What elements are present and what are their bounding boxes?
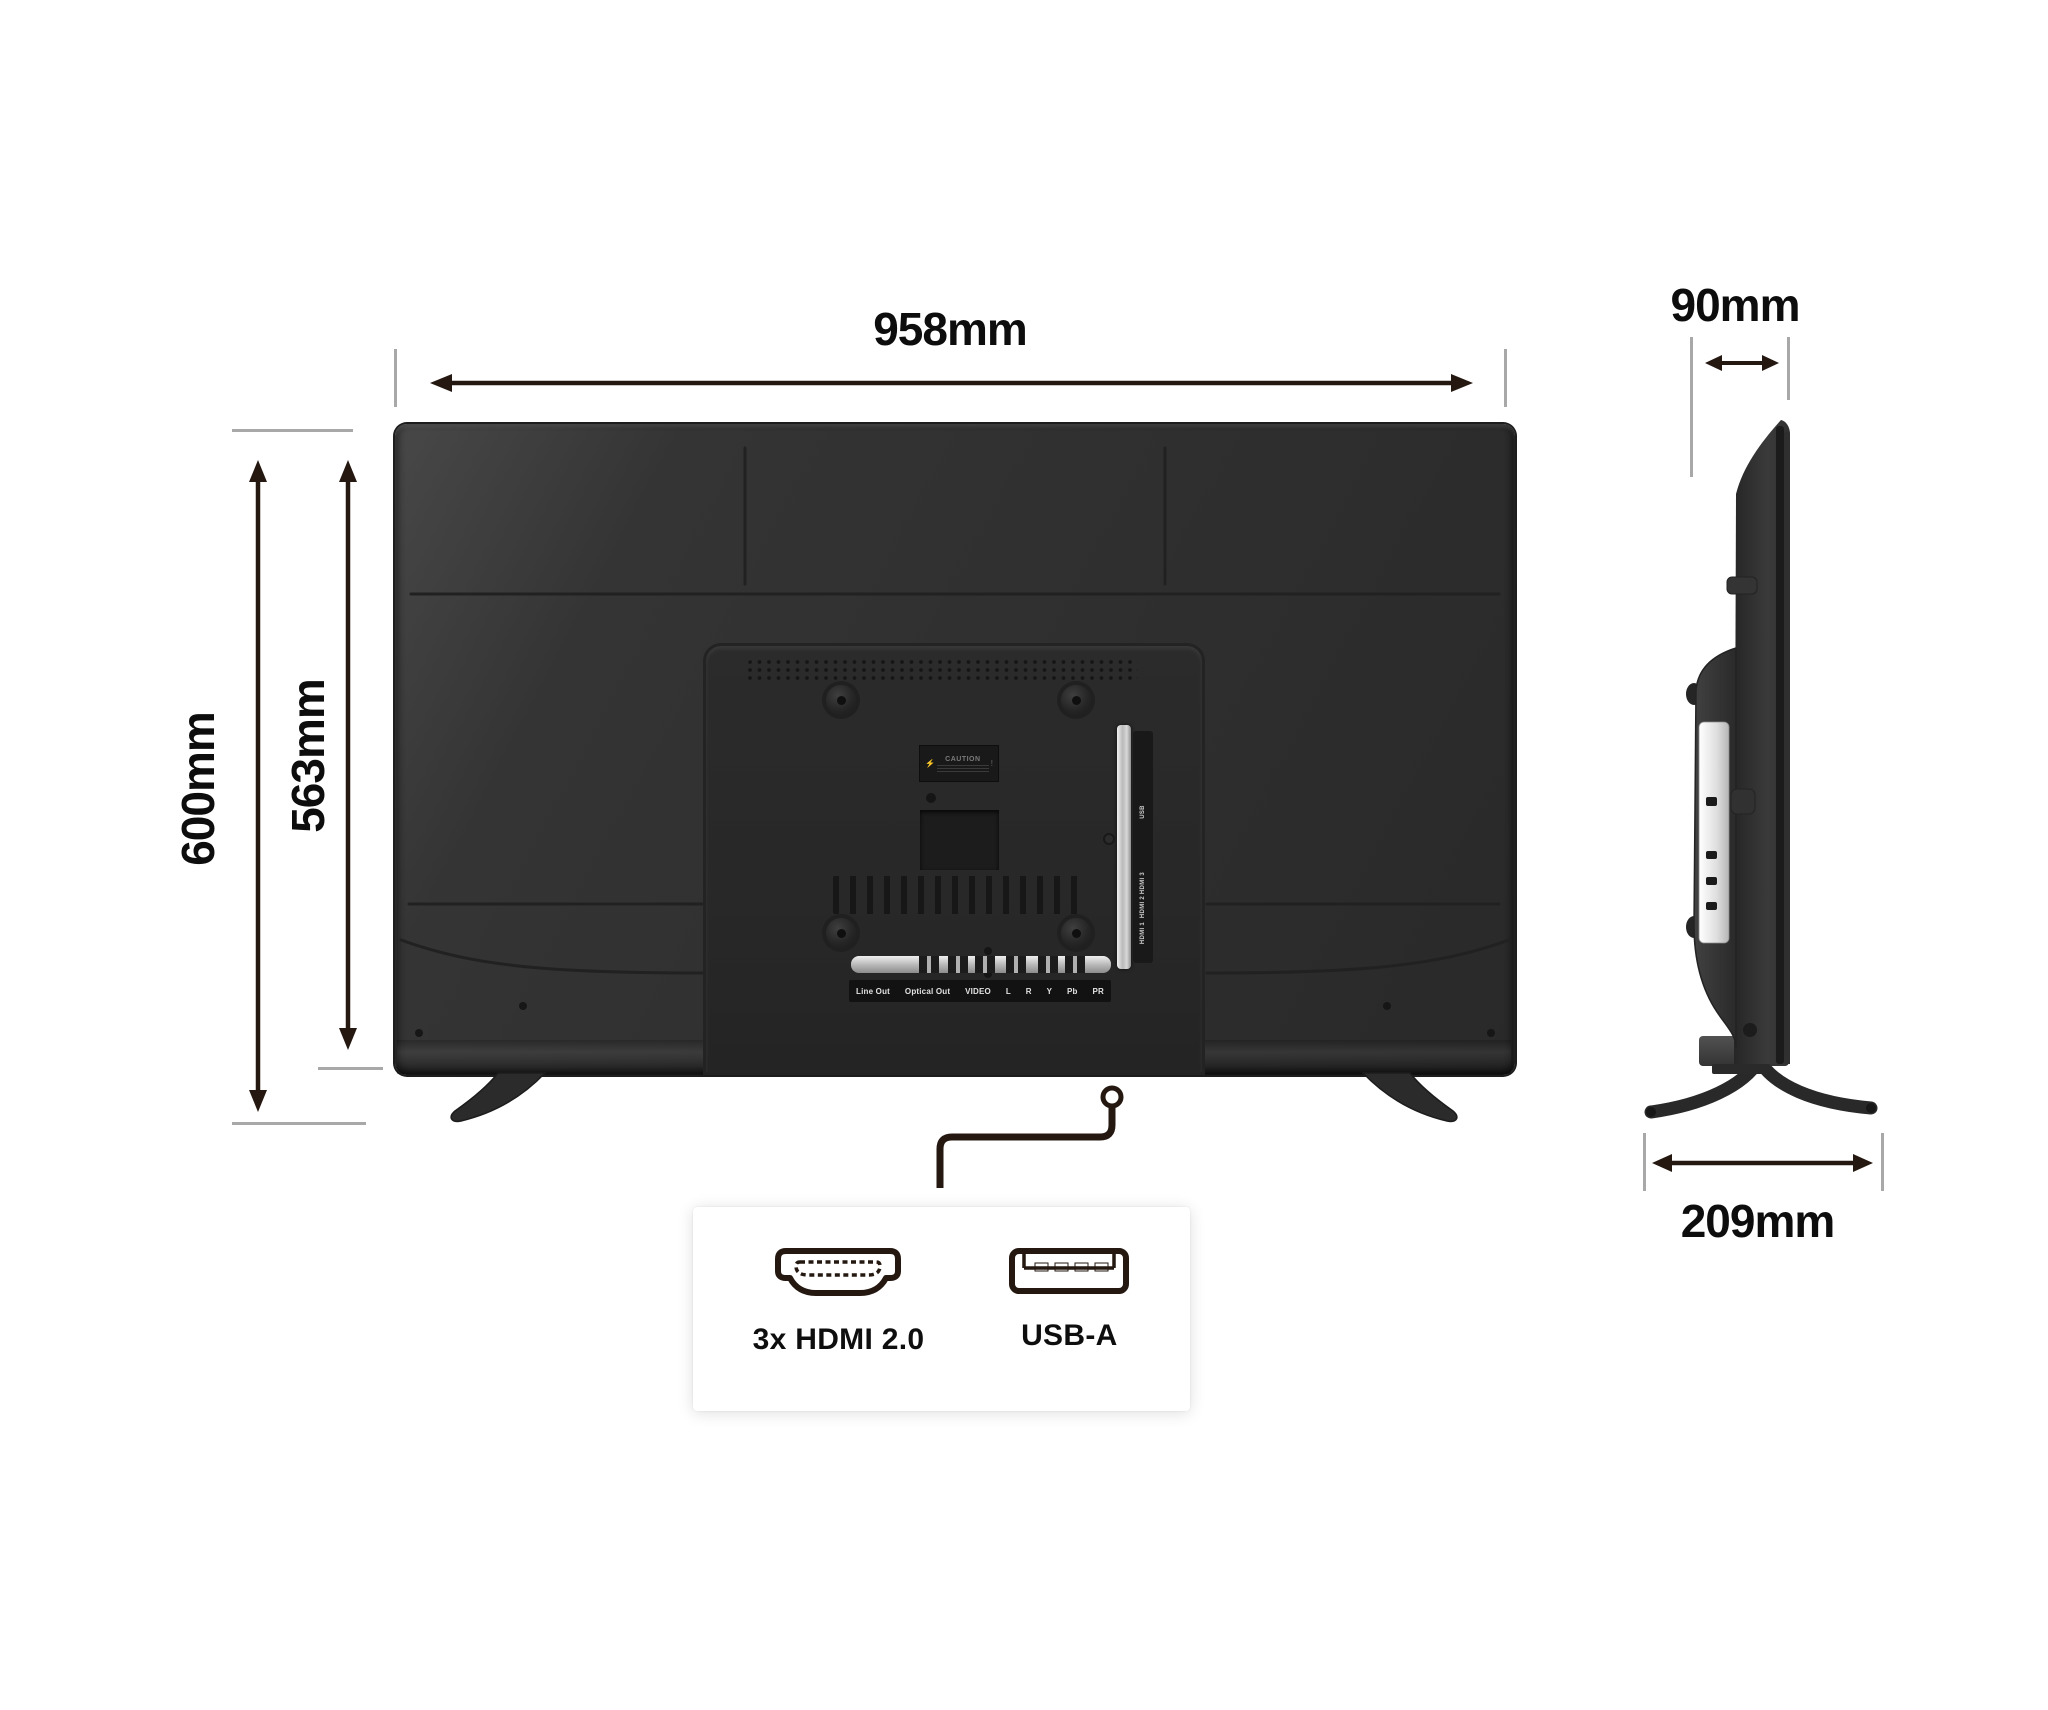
- tv-side-view: [1600, 380, 1920, 1180]
- bottom-port-connector: [975, 956, 995, 973]
- side-hdmi-slot-3: [1706, 851, 1717, 859]
- hdmi-port-item: 3x HDMI 2.0: [753, 1247, 925, 1357]
- screw-center-dot: [837, 929, 846, 938]
- vesa-screw-top-right: [1061, 685, 1091, 715]
- hdmi-port-label: 3x HDMI 2.0: [753, 1323, 925, 1357]
- exclamation-icon: !: [991, 760, 993, 768]
- back-screw-dot: [1487, 1029, 1495, 1037]
- side-port-label-usb: USB: [1136, 799, 1150, 825]
- caution-sticker: ⚡ CAUTION !: [919, 745, 999, 782]
- bottom-port-label-y: Y: [1047, 987, 1053, 996]
- back-screw-dot: [519, 1002, 527, 1010]
- side-ports-metal-strip: [1117, 725, 1131, 969]
- bottom-ports-label-bar: Line Out Optical Out VIDEO L R Y Pb PR: [849, 980, 1111, 1002]
- tv-left-foot: [451, 1073, 545, 1121]
- panel-height-dimension-label: 563mm: [281, 656, 335, 856]
- bottom-port-connector: [1065, 956, 1085, 973]
- caution-text-block: CAUTION: [937, 756, 989, 772]
- extension-line-overall-height-bottom: [232, 1122, 366, 1125]
- side-port-label-hdmi3: HDMI 3: [1136, 870, 1150, 896]
- small-screw: [1103, 833, 1115, 845]
- bottom-port-label-l: L: [1006, 987, 1011, 996]
- bottom-port-label-video: VIDEO: [965, 987, 991, 996]
- panel-hole: [926, 793, 936, 803]
- screw-center-dot: [837, 696, 846, 705]
- extension-line-width-right: [1504, 349, 1507, 407]
- side-hdmi-slot-1: [1706, 902, 1717, 910]
- bottom-port-connector: [919, 956, 939, 973]
- side-panel-latch: [1731, 789, 1755, 814]
- stand-depth-dimension-label: 209mm: [1655, 1194, 1860, 1248]
- overall-height-dimension-label: 600mm: [171, 689, 225, 889]
- caution-fineprint-line: [937, 768, 989, 769]
- callout-path: [940, 1106, 1112, 1188]
- extension-line-panel-height-bottom: [318, 1067, 383, 1070]
- ports-detail-box: 3x HDMI 2.0 USB-A: [693, 1207, 1190, 1411]
- usb-port-icon: [1008, 1247, 1130, 1295]
- side-screen-edge-dark: [1776, 426, 1784, 1064]
- width-dimension-label: 958mm: [830, 302, 1070, 356]
- side-edge-step: [1727, 577, 1757, 594]
- extension-line-height-top: [232, 429, 353, 432]
- ventilation-dot-grid: [748, 660, 1138, 684]
- screw-center-dot: [1072, 929, 1081, 938]
- bottom-port-connector: [1038, 956, 1058, 973]
- ventilation-slots: [833, 876, 1088, 914]
- bottom-port-label-pr: PR: [1092, 987, 1104, 996]
- depth-dimension-arrow: [1705, 352, 1779, 374]
- callout-origin-dot: [1103, 1088, 1121, 1106]
- bottom-port-connector: [1006, 956, 1026, 973]
- ports-callout-line: [920, 1080, 1140, 1200]
- side-port-label-hdmi2: HDMI 2: [1136, 894, 1150, 920]
- recessed-square: [920, 810, 999, 870]
- tv-vesa-recess-panel: ⚡ CAUTION ! USB HDMI 3 HDMI 2 HDMI 1: [703, 643, 1205, 1075]
- caution-fineprint-line: [937, 765, 989, 766]
- side-stand-mount: [1712, 1064, 1770, 1074]
- bottom-port-label-line-out: Line Out: [856, 987, 890, 996]
- panel-height-dimension-arrow: [336, 460, 360, 1050]
- caution-fineprint-line: [937, 771, 989, 772]
- side-bulge-screw: [1743, 1023, 1757, 1037]
- vesa-screw-top-left: [826, 685, 856, 715]
- tv-dimensions-diagram: 958mm 600mm 563mm 90mm 209mm: [0, 0, 2048, 1710]
- caution-label: CAUTION: [945, 756, 980, 763]
- side-stand-foot-tip: [1646, 1107, 1656, 1117]
- side-usb-slot: [1706, 797, 1717, 806]
- vesa-screw-bottom-left: [826, 918, 856, 948]
- side-port-label-hdmi1: HDMI 1: [1136, 920, 1150, 946]
- bottom-port-connector: [948, 956, 968, 973]
- usb-port-label: USB-A: [1021, 1319, 1118, 1353]
- extension-line-width-left: [394, 349, 397, 407]
- back-screw-dot: [1383, 1002, 1391, 1010]
- tv-right-foot: [1363, 1073, 1457, 1121]
- hdmi-port-icon: [774, 1247, 902, 1299]
- side-stand-foot-tip: [1866, 1103, 1876, 1113]
- side-hdmi-slot-2: [1706, 877, 1717, 885]
- width-dimension-arrow: [430, 371, 1473, 395]
- back-screw-dot: [415, 1029, 423, 1037]
- screw-center-dot: [1072, 696, 1081, 705]
- bottom-port-label-optical-out: Optical Out: [905, 987, 950, 996]
- side-screen-edge-light: [1784, 432, 1790, 1064]
- vesa-screw-bottom-right: [1061, 918, 1091, 948]
- panel-screw-dot: [984, 947, 992, 955]
- lightning-icon: ⚡: [925, 760, 935, 768]
- depth-dimension-label: 90mm: [1635, 278, 1835, 332]
- overall-height-dimension-arrow: [246, 460, 270, 1112]
- bottom-port-label-r: R: [1026, 987, 1032, 996]
- bottom-port-label-pb: Pb: [1067, 987, 1078, 996]
- seam-curve-bottom-left: [401, 940, 703, 973]
- seam-curve-bottom-right: [1207, 940, 1509, 973]
- usb-port-item: USB-A: [1008, 1247, 1130, 1353]
